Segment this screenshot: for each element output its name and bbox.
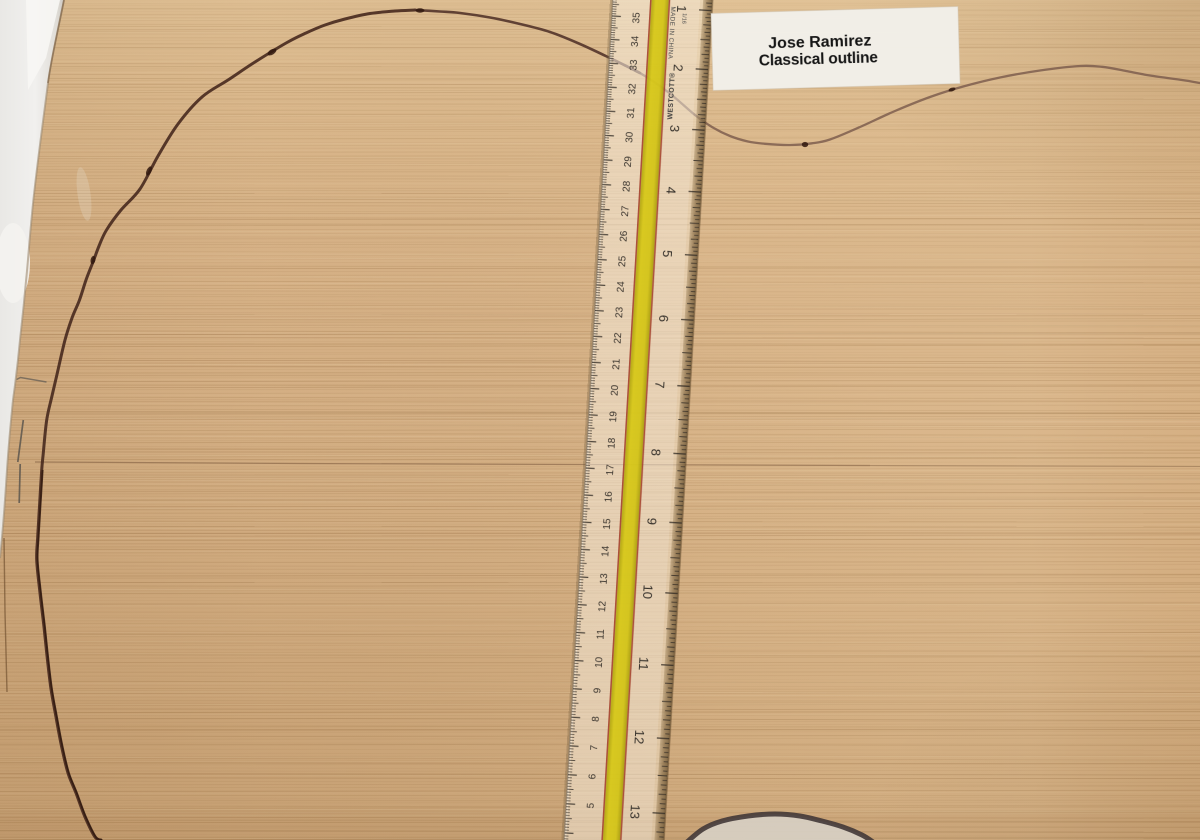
svg-text:9: 9 <box>592 687 603 694</box>
svg-text:5: 5 <box>586 802 597 809</box>
svg-text:1/16: 1/16 <box>680 13 687 24</box>
svg-text:25: 25 <box>617 255 629 267</box>
svg-text:34: 34 <box>630 35 642 47</box>
svg-text:12: 12 <box>597 600 609 612</box>
svg-text:21: 21 <box>611 358 623 370</box>
svg-text:8: 8 <box>648 448 663 456</box>
svg-text:10: 10 <box>640 584 656 599</box>
svg-text:29: 29 <box>623 155 635 167</box>
svg-text:24: 24 <box>616 281 628 293</box>
svg-text:35: 35 <box>631 12 643 24</box>
svg-text:26: 26 <box>619 230 631 242</box>
svg-text:7: 7 <box>652 381 667 389</box>
svg-text:27: 27 <box>620 205 632 217</box>
svg-text:11: 11 <box>636 657 652 671</box>
svg-text:16: 16 <box>603 491 615 503</box>
svg-text:10: 10 <box>594 656 606 668</box>
svg-text:7: 7 <box>589 744 600 751</box>
svg-text:3: 3 <box>667 124 682 132</box>
svg-text:4: 4 <box>663 186 678 194</box>
svg-text:20: 20 <box>610 384 622 396</box>
svg-text:19: 19 <box>608 410 620 422</box>
svg-text:17: 17 <box>605 464 617 476</box>
svg-text:15: 15 <box>602 518 614 530</box>
svg-text:Classical outline: Classical outline <box>759 49 879 69</box>
svg-text:14: 14 <box>600 545 612 557</box>
svg-text:13: 13 <box>627 804 643 819</box>
svg-text:11: 11 <box>595 628 607 639</box>
svg-text:2: 2 <box>670 64 685 72</box>
svg-text:30: 30 <box>624 131 636 143</box>
svg-text:18: 18 <box>607 437 619 449</box>
svg-text:22: 22 <box>613 332 625 344</box>
svg-text:12: 12 <box>631 729 647 744</box>
svg-text:6: 6 <box>587 773 598 780</box>
svg-text:6: 6 <box>656 314 671 322</box>
svg-text:31: 31 <box>626 107 638 119</box>
svg-text:32: 32 <box>627 83 639 95</box>
svg-text:28: 28 <box>621 180 633 192</box>
svg-text:13: 13 <box>599 573 611 585</box>
svg-text:9: 9 <box>644 517 659 525</box>
svg-text:5: 5 <box>660 250 675 258</box>
svg-text:33: 33 <box>628 59 640 71</box>
svg-text:23: 23 <box>614 306 626 318</box>
svg-text:8: 8 <box>591 716 602 723</box>
